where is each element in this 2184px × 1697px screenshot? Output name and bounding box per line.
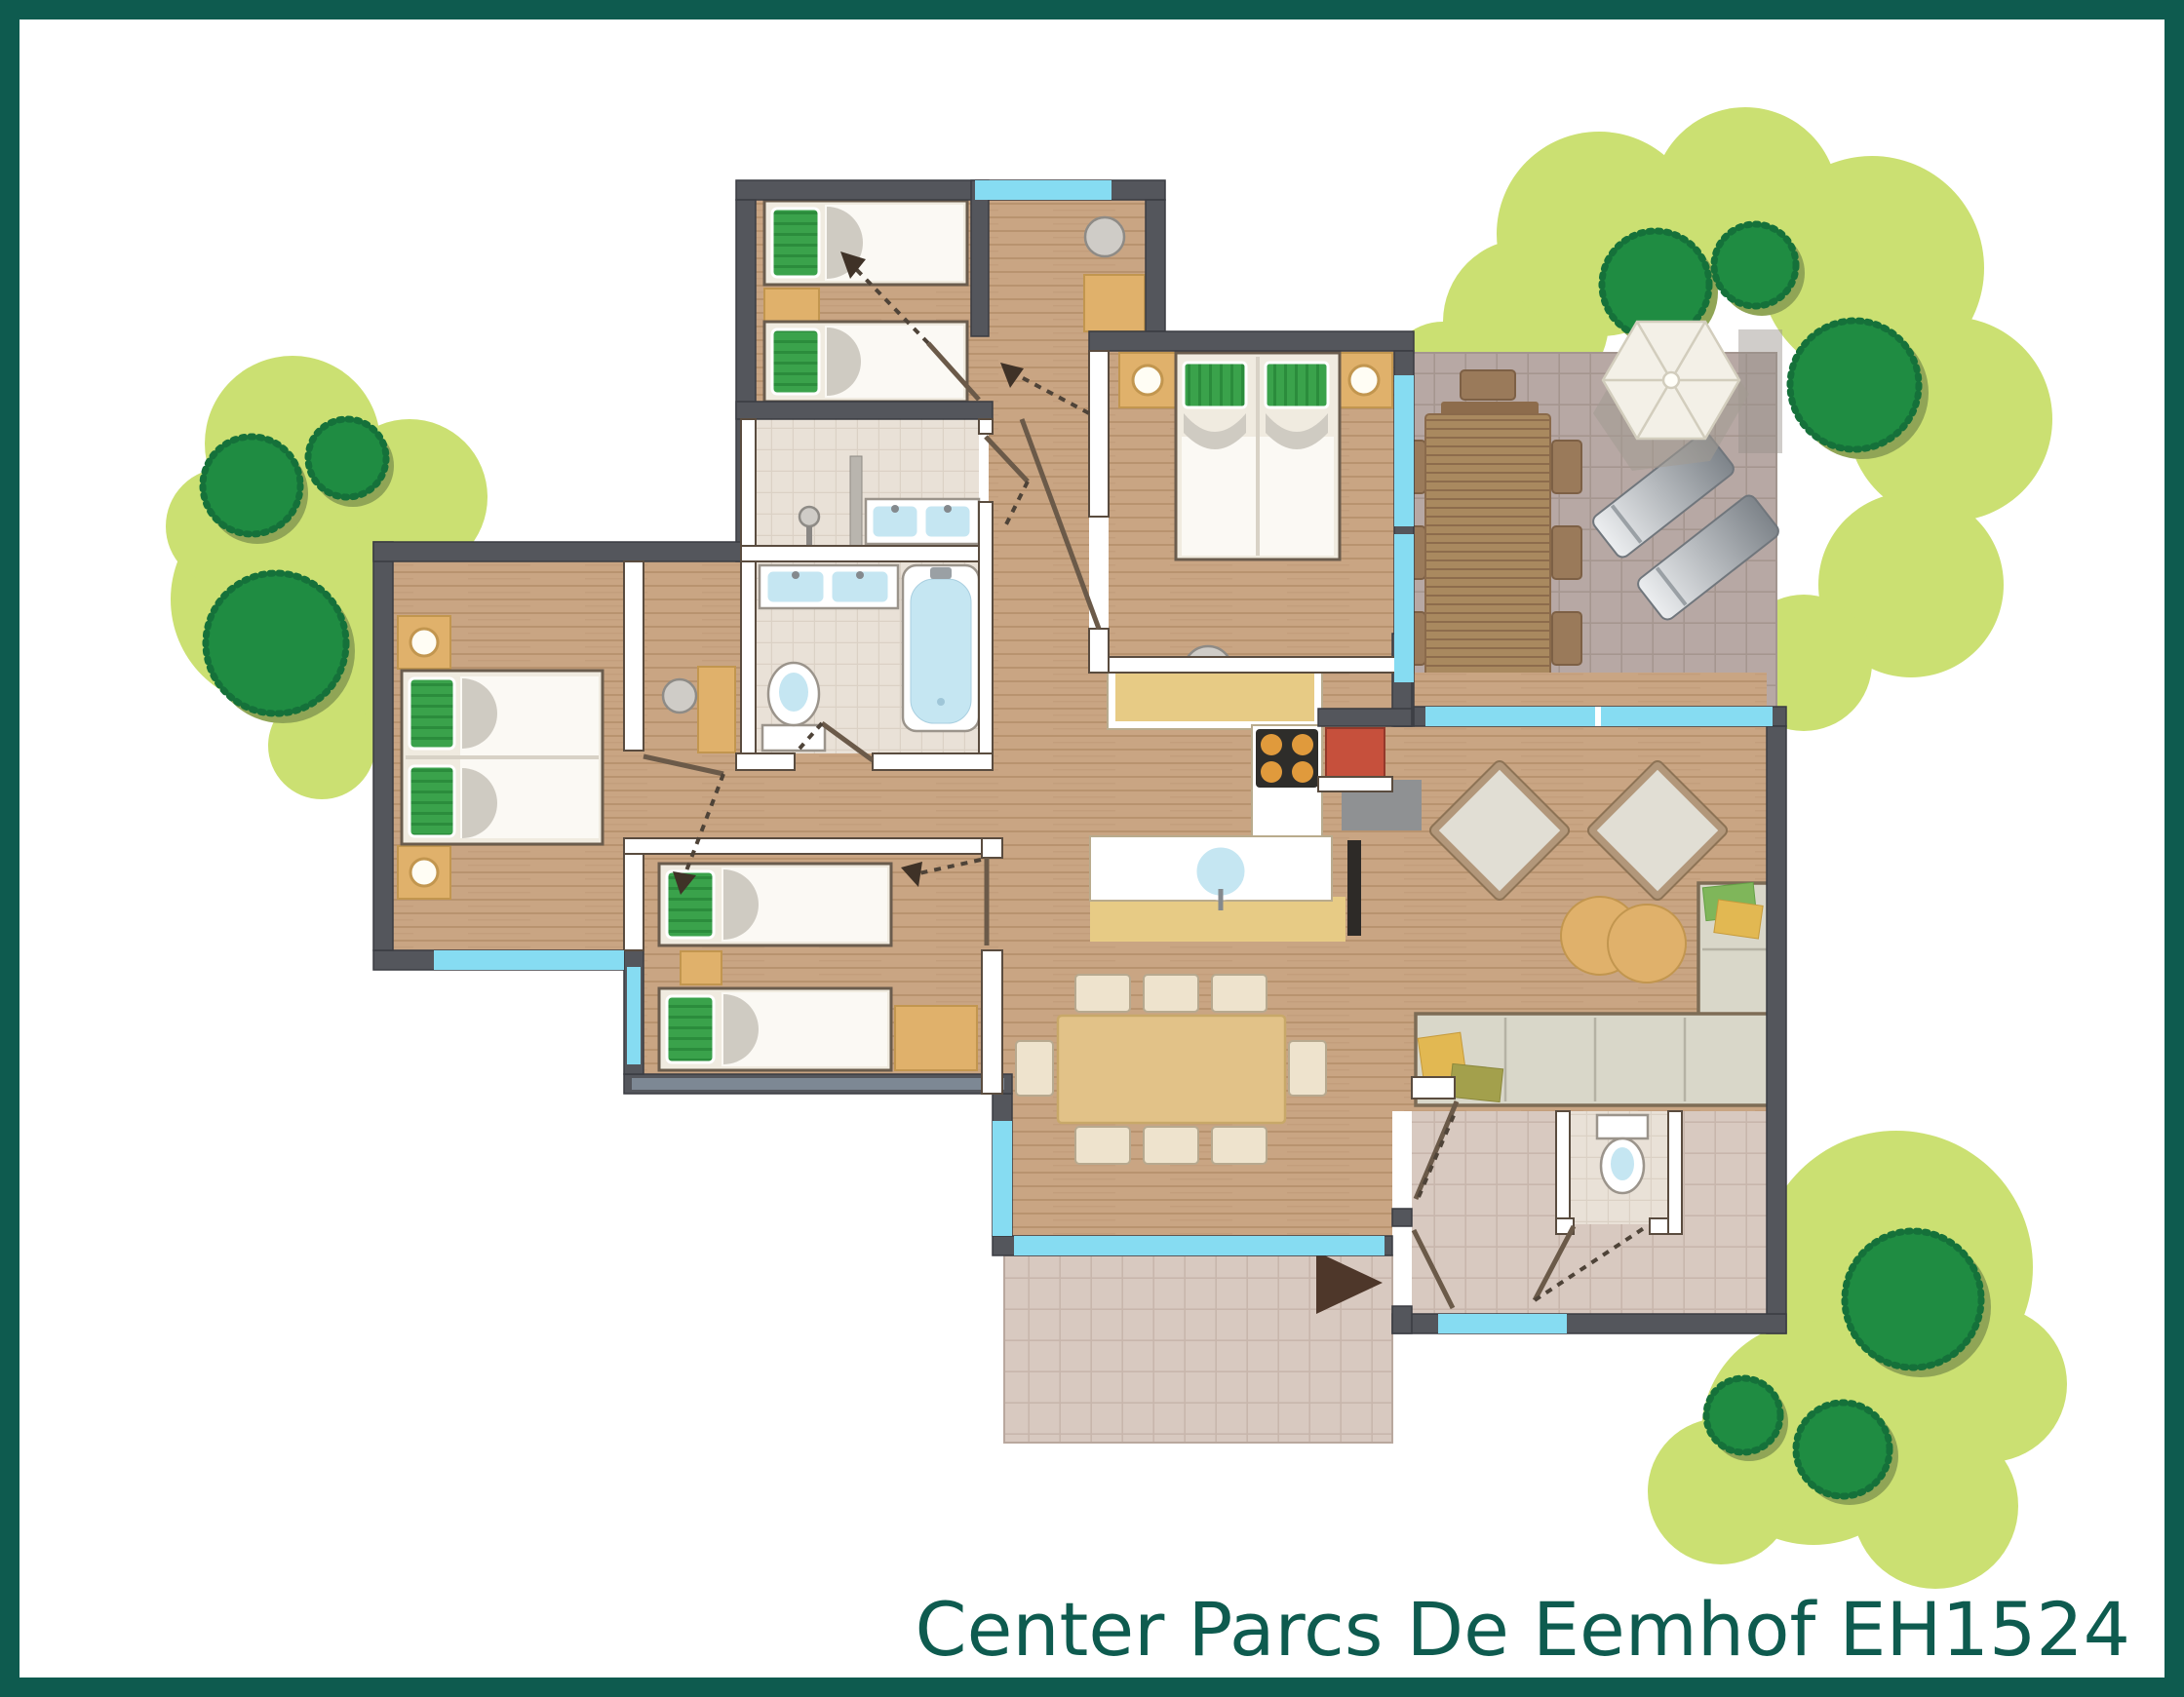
cushion [1449,1063,1502,1101]
floor-plan-image: Center Parcs De Eemhof EH1524 [0,0,2184,1697]
single-bed [659,988,891,1070]
window [975,180,1111,200]
bathtub-icon [903,565,979,731]
nightstand [764,289,819,322]
plan-title: Center Parcs De Eemhof EH1524 [916,1586,2130,1673]
chair [1289,1041,1326,1096]
island-counter [1090,836,1345,942]
window [1394,375,1414,526]
window [1394,534,1414,682]
chair [1016,1041,1053,1096]
cooktop-unit [1252,725,1322,842]
washbasin-icon [663,679,696,713]
glass-wall [993,1121,1012,1236]
stove-icon [1326,728,1384,777]
plan-card: Center Parcs De Eemhof EH1524 [0,0,2184,1697]
double-bed [402,671,603,844]
lamp-icon [1133,366,1162,395]
entrance-hall [1597,1115,1648,1193]
washbasin-icon [1085,217,1124,256]
cushion [1714,900,1763,939]
chair [1212,1127,1267,1164]
wardrobe [895,1006,977,1070]
chair [1212,975,1267,1012]
lamp-icon [1349,366,1379,395]
wardrobe [698,667,735,752]
nightstand [681,951,721,984]
chair [1075,1127,1130,1164]
glass-screen [850,456,862,550]
wardrobe [1084,275,1145,331]
dining-table [1058,1016,1285,1123]
pouf [1608,905,1686,983]
window [1438,1314,1567,1333]
wall-counter [1108,665,1322,729]
chair [1144,1127,1198,1164]
lamp-icon [410,859,438,886]
window [434,950,624,970]
single-bed [764,201,967,285]
single-bed [764,322,967,402]
glass-wall [1014,1236,1384,1255]
chair [1075,975,1130,1012]
double-washbasin [866,499,979,544]
tv-icon [1347,840,1361,936]
toilet-icon [1597,1115,1648,1193]
window [627,967,641,1064]
double-washbasin [760,565,898,608]
lamp-icon [410,629,438,656]
entrance-patio [1004,1252,1392,1443]
chair [1144,975,1198,1012]
double-bed [1176,353,1340,559]
toilet-icon [762,663,825,751]
